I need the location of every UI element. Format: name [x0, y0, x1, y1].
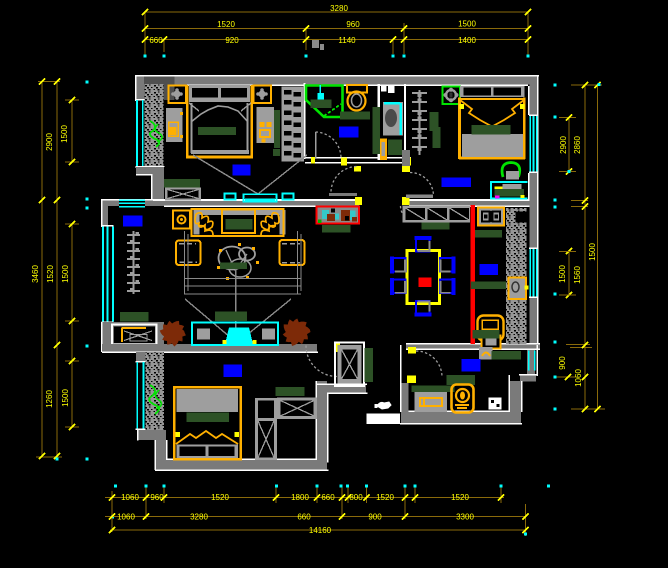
svg-text:1800: 1800 — [291, 493, 309, 502]
svg-text:3280: 3280 — [190, 513, 208, 522]
svg-text:900: 900 — [368, 513, 382, 522]
svg-text:2900: 2900 — [45, 133, 54, 151]
svg-text:900: 900 — [558, 356, 567, 370]
svg-text:1500: 1500 — [61, 265, 70, 283]
svg-text:960: 960 — [346, 20, 360, 29]
svg-text:660: 660 — [321, 493, 335, 502]
svg-text:1520: 1520 — [211, 493, 229, 502]
svg-text:660: 660 — [149, 36, 163, 45]
svg-text:3280: 3280 — [330, 4, 348, 13]
svg-text:1500: 1500 — [588, 243, 597, 261]
svg-text:1060: 1060 — [574, 369, 583, 387]
svg-text:3300: 3300 — [456, 513, 474, 522]
svg-text:1500: 1500 — [60, 125, 69, 143]
svg-text:1500: 1500 — [458, 20, 476, 29]
svg-text:1140: 1140 — [338, 36, 356, 45]
svg-text:800: 800 — [349, 493, 363, 502]
svg-text:920: 920 — [225, 36, 239, 45]
svg-text:960: 960 — [150, 493, 164, 502]
svg-text:1520: 1520 — [46, 265, 55, 283]
svg-text:2900: 2900 — [559, 136, 568, 154]
svg-text:1520: 1520 — [376, 493, 394, 502]
svg-text:1060: 1060 — [117, 513, 135, 522]
svg-text:1560: 1560 — [573, 266, 582, 284]
svg-text:1500: 1500 — [61, 389, 70, 407]
svg-text:14160: 14160 — [309, 526, 332, 535]
svg-text:660: 660 — [297, 513, 311, 522]
svg-text:1520: 1520 — [217, 20, 235, 29]
svg-text:1400: 1400 — [458, 36, 476, 45]
svg-text:1060: 1060 — [121, 493, 139, 502]
svg-text:1520: 1520 — [451, 493, 469, 502]
svg-text:3460: 3460 — [31, 265, 40, 283]
svg-text:1260: 1260 — [45, 390, 54, 408]
svg-text:2860: 2860 — [573, 136, 582, 154]
svg-text:1500: 1500 — [558, 265, 567, 283]
